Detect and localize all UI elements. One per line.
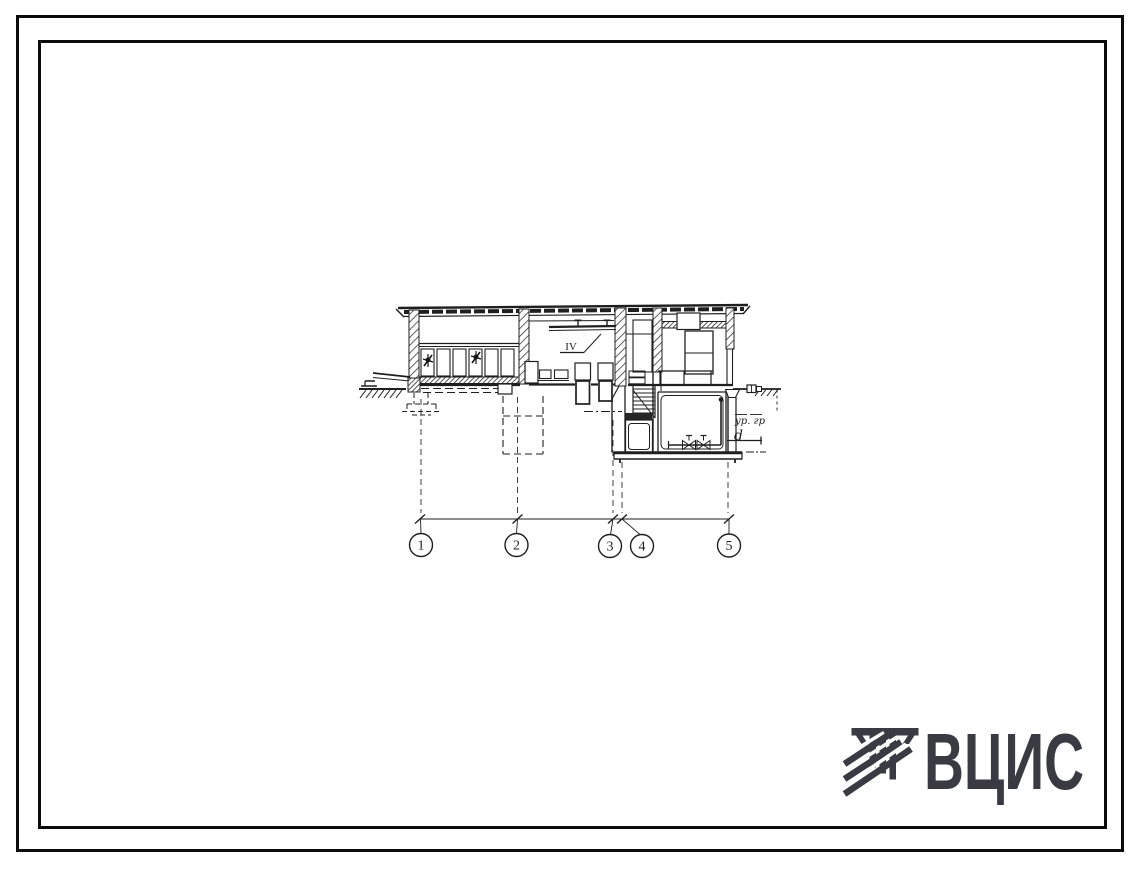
- axis-bubble-4: 4: [631, 535, 654, 558]
- window-band: [415, 344, 520, 386]
- vcis-logo: ВЦИС: [843, 717, 1084, 806]
- wall-axis-3: [615, 308, 626, 386]
- building-section-drawing: IV: [0, 0, 1139, 869]
- ground-right: [733, 385, 781, 411]
- right-block-upper: [626, 313, 733, 385]
- foundation-dashed-axis1: [402, 393, 441, 415]
- axis-extension-lines: [421, 397, 728, 513]
- axis-number: 1: [418, 539, 425, 554]
- axis-bubble-1: 1: [410, 534, 433, 557]
- wall-axis-1: [409, 310, 419, 378]
- ground-level-text: ур. гр: [734, 416, 766, 427]
- plant-sketch-2: [471, 351, 481, 364]
- wall-axis-5: [726, 308, 734, 349]
- logo-columns-icon: [843, 728, 919, 794]
- axis-number: 3: [607, 540, 614, 555]
- stair-landing-slab: [626, 413, 653, 420]
- ground-level-label: ур. гр: [734, 415, 766, 428]
- foundation-pit-dashed: [503, 396, 543, 454]
- section-mark-label: IV: [565, 341, 577, 353]
- axis-number: 2: [513, 539, 520, 554]
- section-mark: IV: [560, 334, 601, 353]
- axis-number: 4: [639, 540, 646, 555]
- axis-bubble-5: 5: [718, 534, 741, 557]
- axis-number: 5: [726, 539, 733, 554]
- logo-wordmark: ВЦИС: [924, 717, 1084, 806]
- dimension-line: [415, 515, 734, 535]
- hall-equipment: [525, 362, 622, 412]
- crane-beam: [529, 320, 616, 330]
- axis-bubble-3: 3: [599, 535, 622, 558]
- plant-sketch-1: [423, 354, 433, 367]
- drawing-sheet: IV: [0, 0, 1139, 869]
- pipe-diameter-label: d: [734, 428, 743, 444]
- wall-axis-4: [653, 308, 662, 372]
- axis-bubble-2: 2: [505, 534, 528, 557]
